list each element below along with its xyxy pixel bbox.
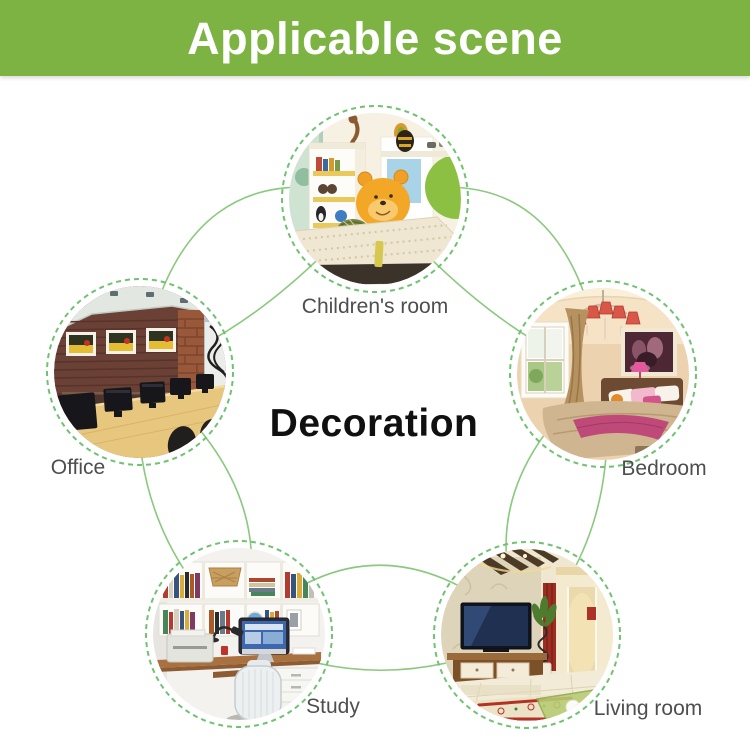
scene-label-children-room: Children's room <box>302 295 448 319</box>
scene-photo-living-room <box>441 549 613 721</box>
scene-photo-children-room <box>289 113 461 285</box>
center-title: Decoration <box>270 402 479 446</box>
bedroom-illustration <box>517 288 689 460</box>
scene-label-study: Study <box>306 695 360 719</box>
applicable-scene-infographic: Applicable scene <box>0 0 750 750</box>
study-illustration <box>153 548 325 720</box>
living-room-illustration <box>441 549 613 721</box>
scene-photo-study <box>153 548 325 720</box>
scene-photo-office <box>54 286 226 458</box>
scene-label-office: Office <box>51 456 105 480</box>
scene-label-living-room: Living room <box>594 697 703 721</box>
office-illustration <box>54 286 226 458</box>
children-room-illustration <box>289 113 461 285</box>
scene-label-bedroom: Bedroom <box>621 457 706 481</box>
scene-photo-bedroom <box>517 288 689 460</box>
